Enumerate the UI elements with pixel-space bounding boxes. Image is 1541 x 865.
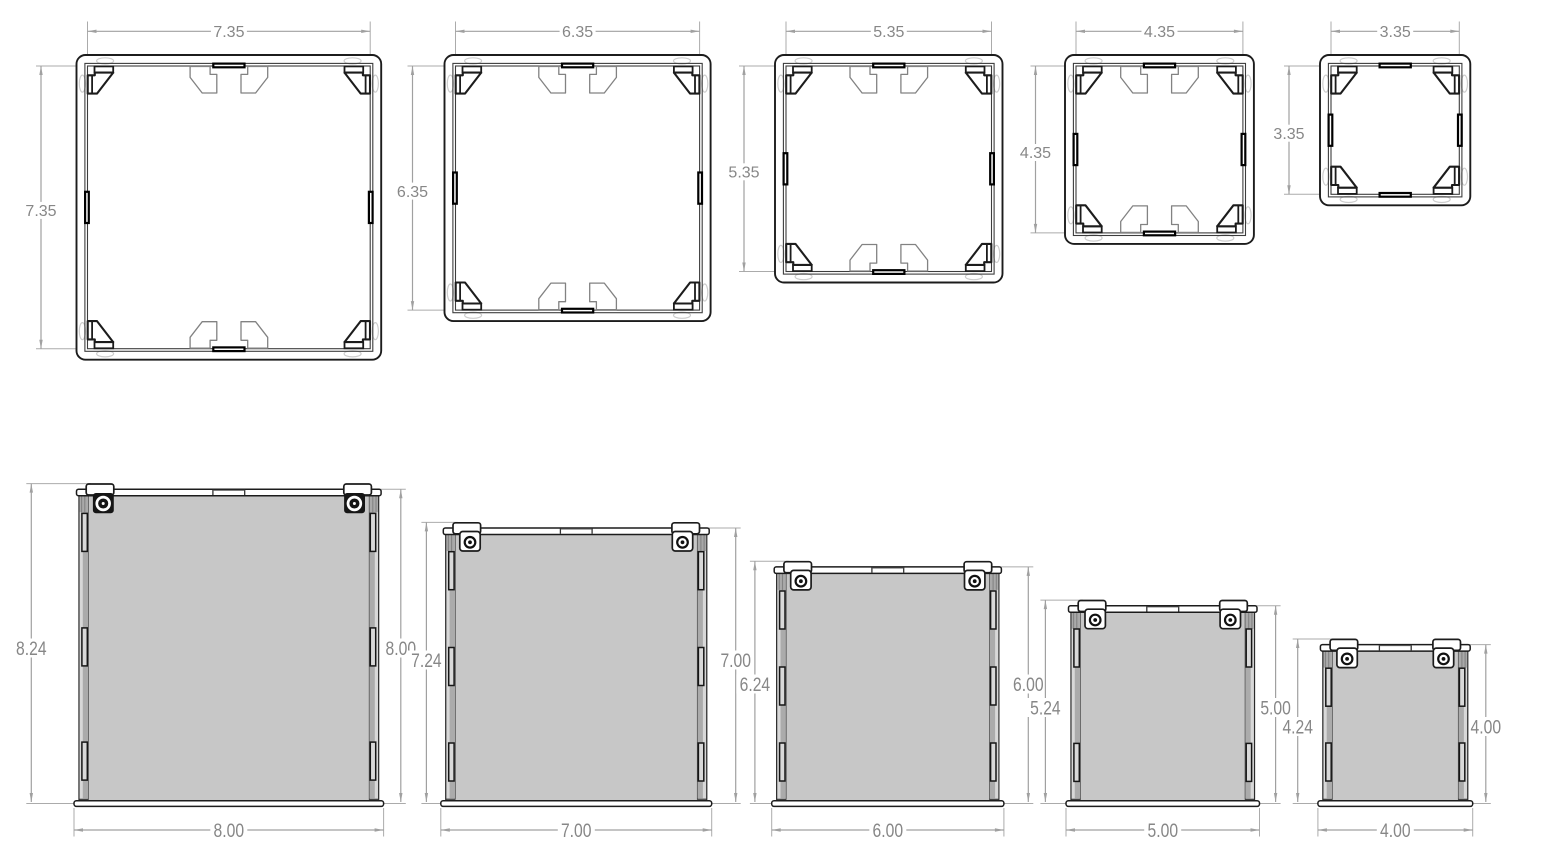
svg-text:5.35: 5.35: [728, 165, 759, 182]
svg-text:7.24: 7.24: [411, 651, 442, 672]
svg-text:5.00: 5.00: [1148, 821, 1179, 842]
svg-text:4.35: 4.35: [1020, 145, 1051, 162]
svg-text:6.35: 6.35: [397, 184, 428, 201]
svg-text:6.00: 6.00: [1013, 675, 1044, 696]
svg-text:4.24: 4.24: [1282, 717, 1313, 738]
svg-text:5.00: 5.00: [1260, 698, 1291, 719]
svg-text:6.35: 6.35: [562, 24, 593, 41]
svg-text:3.35: 3.35: [1273, 126, 1304, 143]
svg-text:3.35: 3.35: [1380, 24, 1411, 41]
svg-text:7.00: 7.00: [720, 651, 751, 672]
svg-text:7.35: 7.35: [25, 203, 56, 220]
svg-text:7.00: 7.00: [561, 821, 592, 842]
svg-text:5.35: 5.35: [873, 24, 904, 41]
svg-text:4.35: 4.35: [1144, 24, 1175, 41]
svg-text:5.24: 5.24: [1030, 698, 1061, 719]
svg-text:8.00: 8.00: [214, 821, 245, 842]
svg-text:6.24: 6.24: [740, 675, 771, 696]
svg-text:4.00: 4.00: [1380, 821, 1411, 842]
svg-text:6.00: 6.00: [873, 821, 904, 842]
svg-text:4.00: 4.00: [1471, 717, 1502, 738]
svg-text:8.24: 8.24: [16, 639, 47, 660]
svg-text:7.35: 7.35: [213, 24, 244, 41]
